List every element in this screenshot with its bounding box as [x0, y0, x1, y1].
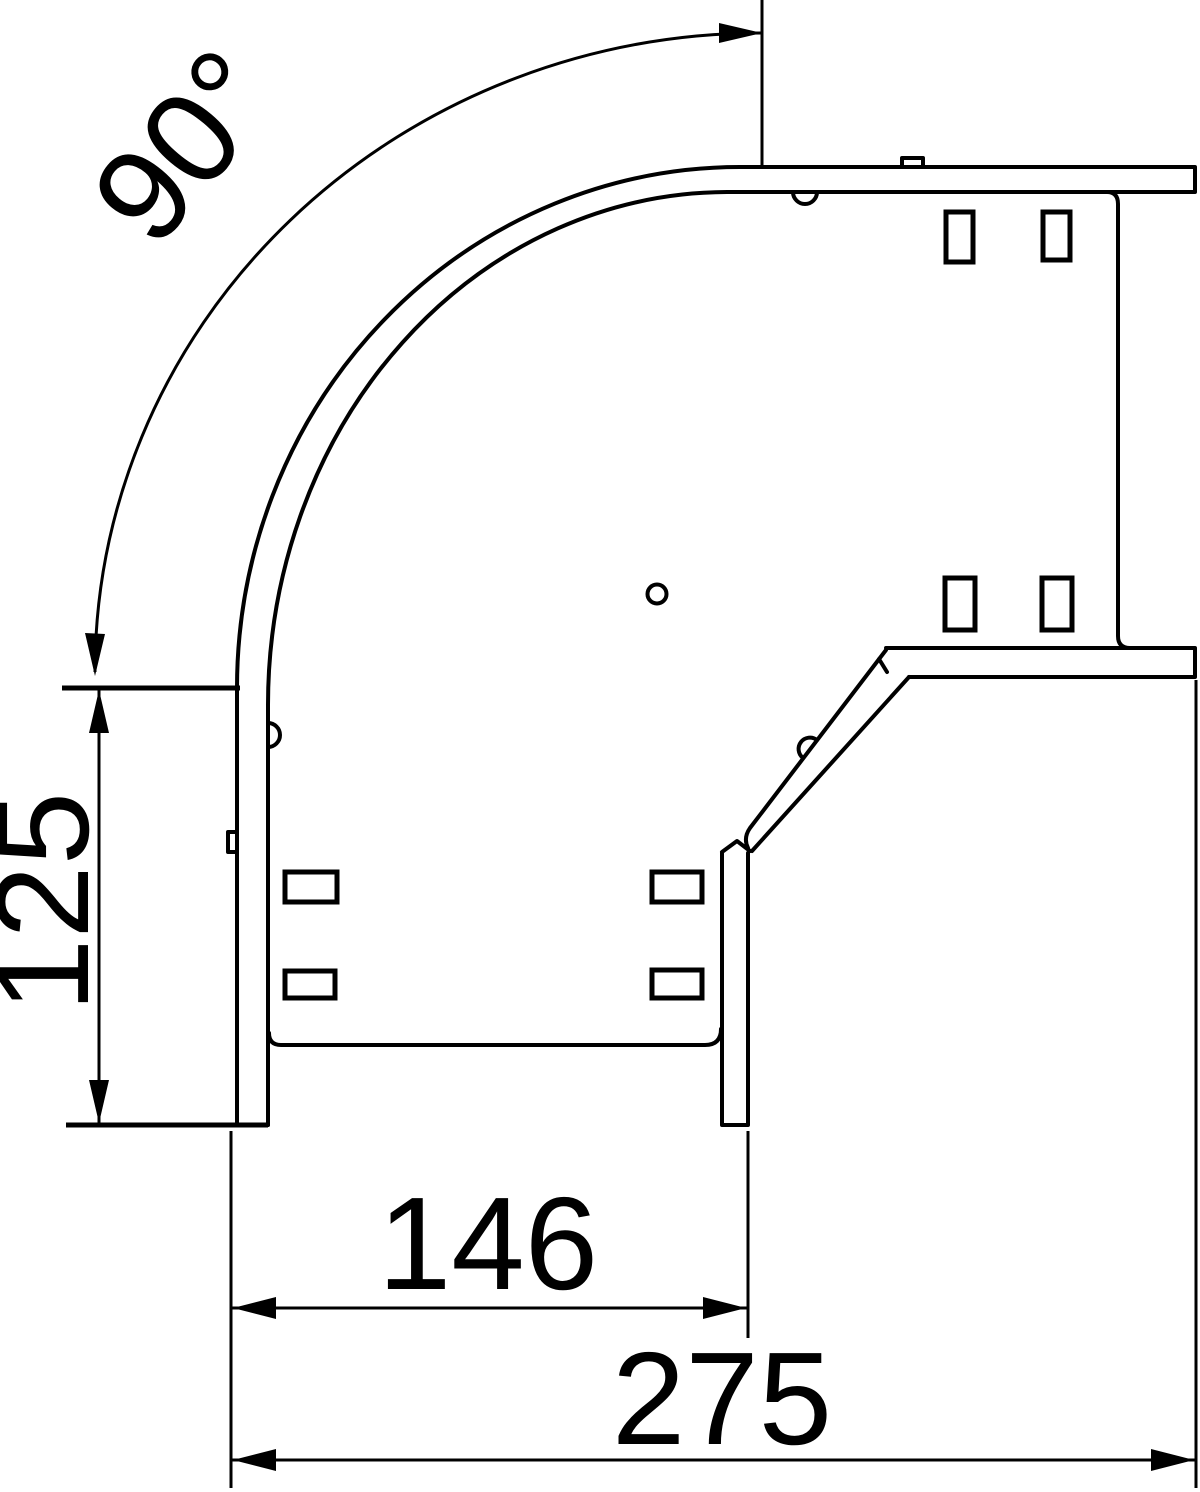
diagonal-seam-upper: [746, 650, 887, 848]
dim146-arrow-left: [233, 1297, 276, 1319]
slot-bottom-left-upper: [285, 872, 337, 902]
dim125-arrow-bottom: [89, 1080, 109, 1123]
center-hole: [648, 585, 667, 604]
dim146-label: 146: [378, 1170, 598, 1317]
slot-bottom-right-lower: [652, 970, 702, 998]
drawing-sheet: 90° 125 146 275: [0, 0, 1200, 1492]
angle-label: 90°: [64, 23, 305, 270]
bend-drawing: 90° 125 146 275: [0, 0, 1200, 1492]
dim125-label: 125: [0, 792, 116, 1012]
dim275-arrow-left: [233, 1449, 276, 1471]
slot-right-top-2: [1043, 212, 1070, 260]
angle-arrow-bottom: [85, 633, 105, 676]
dim125-arrow-top: [89, 690, 109, 733]
right-seam-line: [1107, 192, 1130, 648]
slot-bottom-left-lower: [285, 971, 335, 998]
slot-right-bottom-1: [945, 578, 975, 630]
web-bottom-edge: [269, 1029, 721, 1045]
bottom-right-rail: [722, 841, 750, 1125]
slot-bottom-right-upper: [652, 872, 702, 902]
angle-arrow-top: [719, 23, 762, 43]
right-opening-bottom-rail: [886, 648, 1195, 677]
dim275-arrow-right: [1151, 1449, 1194, 1471]
dim146-arrow-right: [703, 1297, 746, 1319]
dim275-label: 275: [612, 1325, 832, 1472]
slot-right-top-1: [946, 212, 973, 262]
diagonal-seam-lower: [752, 677, 909, 851]
slot-right-bottom-2: [1042, 578, 1072, 630]
